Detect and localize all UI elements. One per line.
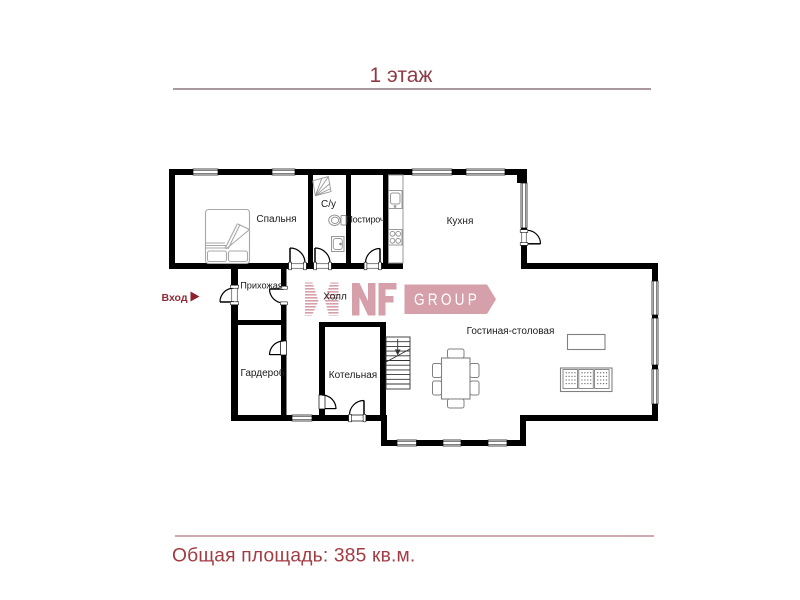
svg-text:С/у: С/у — [321, 199, 336, 210]
svg-text:Вход: Вход — [162, 292, 188, 304]
svg-text:Котельная: Котельная — [329, 370, 377, 381]
svg-text:Постироч.: Постироч. — [346, 215, 386, 225]
svg-text:Спальня: Спальня — [256, 214, 296, 225]
svg-text:Прихожая: Прихожая — [240, 281, 283, 291]
svg-text:1 этаж: 1 этаж — [370, 64, 433, 87]
svg-text:Гостиная-столовая: Гостиная-столовая — [467, 326, 555, 337]
svg-text:Холл: Холл — [323, 292, 347, 303]
svg-text:GROUP: GROUP — [414, 290, 480, 309]
svg-text:Гардероб: Гардероб — [241, 367, 285, 379]
svg-text:Кухня: Кухня — [447, 216, 474, 227]
svg-text:Общая площадь: 385 кв.м.: Общая площадь: 385 кв.м. — [172, 546, 415, 567]
